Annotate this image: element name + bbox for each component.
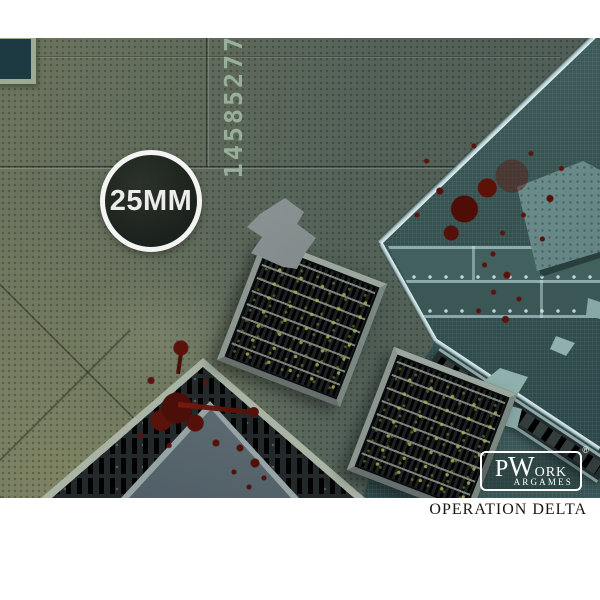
product-page: { "badge": { "label": "25MM" }, "mat": {…: [0, 0, 600, 600]
scale-badge-label: 25MM: [110, 185, 193, 218]
stencil-serial-number: 14585277: [215, 41, 251, 171]
pwork-wargames-logo: ® PWORK ARGAMES: [480, 451, 582, 491]
hatch-panel: [0, 38, 36, 84]
panel-seam-vertical: [206, 38, 209, 167]
registered-trademark-icon: ®: [582, 445, 589, 455]
panel-seam-top: [0, 56, 560, 58]
battle-mat-photo: 14585277 25MM ® PWORK ARGAMES: [0, 38, 600, 498]
blood-splatter-right: [398, 116, 588, 266]
logo-letter-p: P: [495, 457, 508, 481]
product-title: OPERATION DELTA: [429, 501, 587, 519]
scale-badge: 25MM: [100, 150, 202, 252]
blood-speckles-bricks: [462, 248, 537, 333]
blood-speckles-vent: [222, 436, 282, 496]
